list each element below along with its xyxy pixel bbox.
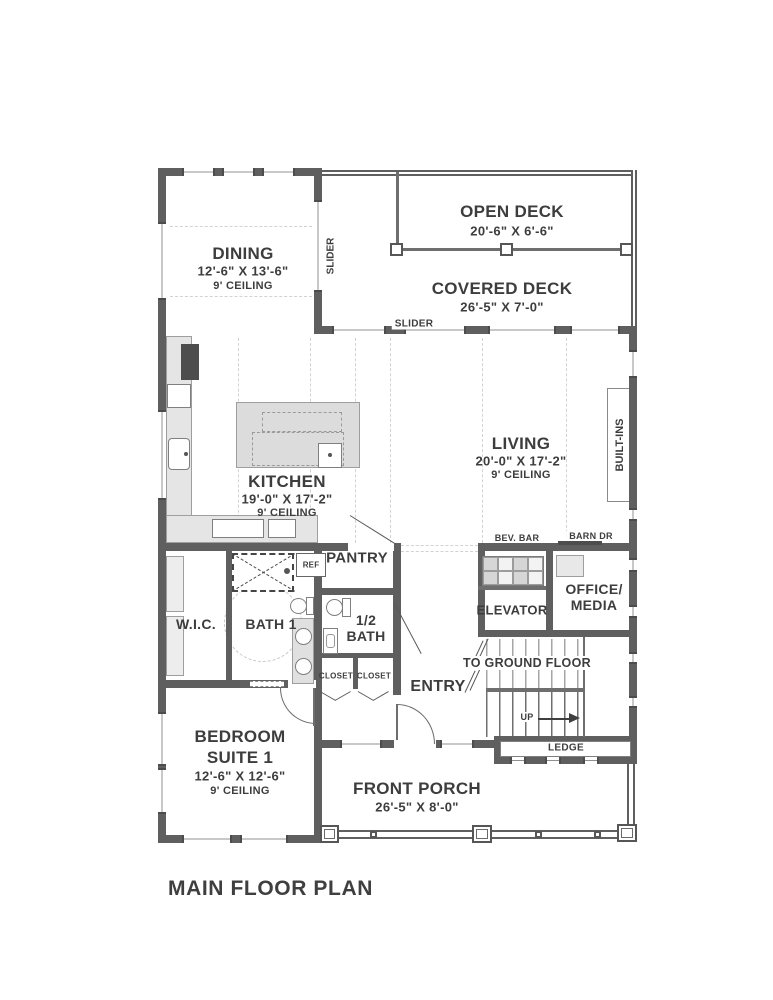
dining-label: DINING bbox=[212, 244, 273, 264]
front-porch-label: FRONT PORCH bbox=[353, 779, 481, 799]
closet-right-label: CLOSET bbox=[357, 672, 391, 681]
bedroom-label2: SUITE 1 bbox=[207, 748, 273, 768]
closet-bifold-door bbox=[373, 691, 389, 701]
living-slider-door bbox=[570, 326, 620, 334]
deck-post bbox=[620, 243, 633, 256]
bedroom-left-window bbox=[158, 768, 166, 814]
bath1-toilet-tank bbox=[306, 597, 314, 615]
stair-right-window bbox=[629, 652, 637, 664]
office-label-line1: OFFICE/ bbox=[565, 581, 622, 597]
porch-column bbox=[472, 825, 492, 843]
dishwasher bbox=[268, 519, 296, 538]
right-wall-window bbox=[629, 508, 637, 521]
living-ceiling-dash bbox=[482, 338, 483, 543]
office-label-line2: MEDIA bbox=[571, 597, 618, 613]
dining-slider-door bbox=[314, 200, 322, 292]
dining-ceiling-dash bbox=[170, 296, 312, 297]
range-appliance bbox=[181, 344, 199, 380]
stair-right-window bbox=[629, 696, 637, 708]
half-bath-label-line2: BATH bbox=[346, 628, 385, 644]
bedroom-bottom-window bbox=[240, 835, 288, 843]
entry-label: ENTRY bbox=[410, 678, 465, 696]
ref-label: REF bbox=[303, 561, 320, 570]
kitchen-label: KITCHEN bbox=[248, 472, 326, 492]
front-porch-dims: 26'-5" X 8'-0" bbox=[375, 800, 458, 815]
island-seating-dashed bbox=[262, 412, 342, 432]
bath1-label: BATH 1 bbox=[245, 616, 296, 632]
living-right-window bbox=[629, 350, 637, 378]
porch-baluster bbox=[535, 831, 542, 838]
up-arrow-head bbox=[569, 713, 580, 723]
half-bath-sink-basin bbox=[326, 634, 335, 648]
cooktop bbox=[212, 519, 264, 538]
wall-elevator-office-divider bbox=[546, 551, 553, 637]
wall-office-south bbox=[478, 630, 637, 637]
living-dims: 20'-0" X 17'-2" bbox=[476, 454, 567, 469]
bath-bedroom-cased-opening bbox=[250, 681, 284, 687]
ledge-window bbox=[545, 757, 561, 764]
covered-deck-dims: 26'-5" X 7'-0" bbox=[460, 300, 543, 315]
elevator-label: ELEVATOR bbox=[476, 603, 547, 618]
living-ceiling-dash bbox=[566, 338, 567, 543]
bedroom-label: BEDROOM bbox=[195, 727, 286, 747]
living-slider-door bbox=[332, 326, 386, 334]
kitchen-left-window bbox=[158, 410, 166, 500]
ledge-window bbox=[583, 757, 599, 764]
deck-top-rail bbox=[322, 170, 637, 176]
hall-opening-dash bbox=[401, 551, 478, 552]
kitchen-faucet-dot bbox=[184, 452, 188, 456]
page-title: MAIN FLOOR PLAN bbox=[168, 877, 373, 901]
wall-oven bbox=[167, 384, 191, 408]
up-arrow-line bbox=[538, 718, 571, 720]
dining-ceiling: 9' CEILING bbox=[213, 280, 272, 292]
closet-left-label: CLOSET bbox=[319, 672, 353, 681]
dining-ceiling-dash bbox=[170, 226, 312, 227]
dining-dims: 12'-6" X 13'-6" bbox=[198, 264, 289, 279]
open-deck-left-line bbox=[396, 172, 399, 251]
living-slider-door bbox=[488, 326, 556, 334]
wall-pantry-bottom bbox=[314, 588, 401, 595]
porch-column bbox=[320, 825, 339, 843]
bedroom-door-arc bbox=[280, 688, 316, 724]
bath1-sink bbox=[295, 628, 312, 645]
built-ins-label: BUILT-INS bbox=[614, 419, 626, 472]
wic-label: W.I.C. bbox=[176, 616, 216, 632]
island-faucet-dot bbox=[328, 453, 332, 457]
porch-north-window bbox=[340, 740, 382, 748]
deck-divider-line bbox=[396, 248, 632, 251]
wall-bevbar-elevator-divider bbox=[478, 586, 546, 590]
porch-baluster bbox=[370, 831, 377, 838]
wall-pantry-right bbox=[393, 543, 401, 695]
bev-bar-label: BEV. BAR bbox=[492, 533, 543, 543]
half-bath-label-line1: 1/2 bbox=[356, 612, 376, 628]
porch-baluster bbox=[594, 831, 601, 838]
dining-top-window bbox=[262, 168, 295, 176]
ledge-window bbox=[510, 757, 526, 764]
stairs-rail bbox=[486, 688, 583, 692]
living-ceiling: 9' CEILING bbox=[491, 469, 550, 481]
bath1-sink bbox=[295, 658, 312, 675]
half-bath-toilet-tank bbox=[342, 598, 351, 617]
wic-shelving bbox=[166, 556, 184, 612]
front-door-arc bbox=[397, 704, 435, 744]
barn-door-track bbox=[558, 541, 602, 545]
hall-opening-dash bbox=[401, 545, 478, 546]
stairs-stringer bbox=[583, 637, 585, 737]
office-right-window bbox=[629, 605, 637, 618]
kitchen-dims: 19'-0" X 17'-2" bbox=[242, 492, 333, 507]
half-bath-toilet-bowl bbox=[326, 599, 343, 616]
floor-plan-canvas: OPEN DECK 20'-6" X 6'-6" COVERED DECK 26… bbox=[0, 0, 773, 1000]
bedroom-dims: 12'-6" X 12'-6" bbox=[195, 769, 286, 784]
deck-post bbox=[390, 243, 403, 256]
office-right-window bbox=[629, 558, 637, 572]
office-cabinet bbox=[556, 555, 584, 577]
shower-head bbox=[284, 568, 290, 574]
bev-bar-cabinets bbox=[482, 556, 544, 586]
barn-dr-label: BARN DR bbox=[566, 531, 616, 541]
dining-top-window bbox=[222, 168, 255, 176]
living-label: LIVING bbox=[492, 434, 550, 454]
to-ground-floor-label: TO GROUND FLOOR bbox=[460, 656, 594, 670]
covered-deck-label: COVERED DECK bbox=[432, 279, 573, 299]
bedroom-bottom-window bbox=[182, 835, 232, 843]
open-deck-label: OPEN DECK bbox=[460, 202, 564, 222]
kitchen-ceiling-dash bbox=[390, 338, 391, 543]
slider-side-label: SLIDER bbox=[326, 238, 337, 275]
bedroom-ceiling: 9' CEILING bbox=[210, 785, 269, 797]
porch-column bbox=[617, 824, 637, 842]
up-label: UP bbox=[517, 712, 536, 722]
porch-north-window bbox=[440, 740, 474, 748]
dining-left-window bbox=[158, 222, 166, 300]
bedroom-left-window bbox=[158, 712, 166, 766]
closet-bifold-door bbox=[335, 691, 351, 701]
slider-top-label: SLIDER bbox=[392, 319, 436, 330]
pantry-label: PANTRY bbox=[326, 550, 388, 567]
kitchen-ceiling: 9' CEILING bbox=[257, 507, 316, 519]
bath1-toilet-bowl bbox=[290, 598, 307, 614]
ledge-label: LEDGE bbox=[548, 743, 584, 754]
dining-top-window bbox=[182, 168, 215, 176]
deck-post bbox=[500, 243, 513, 256]
open-deck-dims: 20'-6" X 6'-6" bbox=[470, 224, 553, 239]
